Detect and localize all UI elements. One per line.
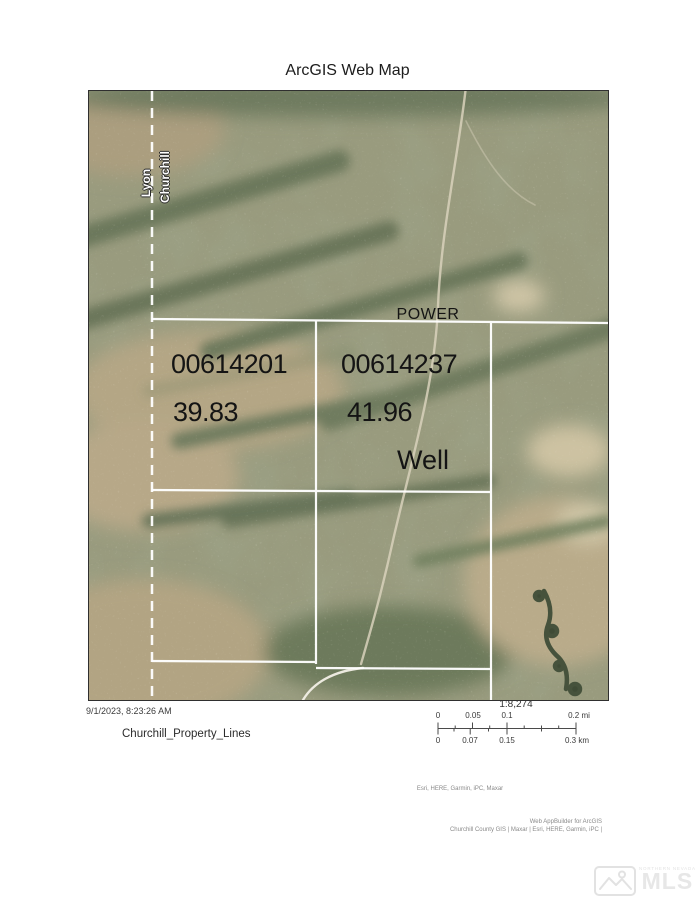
app-attribution-line1: Web AppBuilder for ArcGIS: [390, 819, 602, 827]
legend-layer-title: Churchill_Property_Lines: [122, 728, 250, 740]
app-attribution-line2: Churchill County GIS | Maxar | Esri, HER…: [390, 827, 602, 835]
arcgis-print-page: ArcGIS Web Map: [0, 0, 695, 900]
mls-watermark-text: NORTHERN NEVADA MLS: [639, 866, 695, 893]
app-attribution: Web AppBuilder for ArcGIS Churchill Coun…: [390, 819, 602, 834]
watermark-big-text: MLS: [639, 871, 695, 893]
parcel-number-00614237: 00614237: [341, 349, 457, 380]
county-label-lyon: Lyon: [139, 169, 153, 197]
scale-mi-tick: 0.05: [465, 711, 481, 720]
scale-mi-tick: 0: [436, 711, 440, 720]
basemap-attribution: Esri, HERE, Garmin, iPC, Maxar: [380, 786, 540, 792]
mls-watermark: NORTHERN NEVADA MLS: [594, 866, 695, 896]
scale-km-tick: 0.3 km: [565, 736, 589, 745]
scale-mi-tick: 0.2 mi: [568, 711, 590, 720]
parcel-number-00614201: 00614201: [171, 349, 287, 380]
scale-km-tick: 0.15: [499, 736, 515, 745]
scale-ratio: 1:8,274: [446, 699, 586, 710]
scale-km-tick: 0: [436, 736, 440, 745]
parcel-acreage-39-83: 39.83: [173, 397, 238, 428]
photo-placeholder-icon: [594, 866, 636, 896]
scale-bar: 0 0.05 0.1 0.2 mi: [437, 711, 587, 749]
map-canvas: Lyon Churchill POWER 00614201 39.83 0061…: [88, 90, 609, 701]
parcel-acreage-41-96: 41.96: [347, 397, 412, 428]
scale-bar-ruler: [437, 722, 583, 735]
export-timestamp: 9/1/2023, 8:23:26 AM: [86, 706, 172, 716]
scale-mi-tick: 0.1: [501, 711, 512, 720]
scale-km-tick: 0.07: [462, 736, 478, 745]
well-label: Well: [397, 445, 449, 476]
county-label-churchill: Churchill: [158, 151, 172, 203]
page-title: ArcGIS Web Map: [88, 62, 607, 80]
power-label: POWER: [397, 306, 460, 324]
